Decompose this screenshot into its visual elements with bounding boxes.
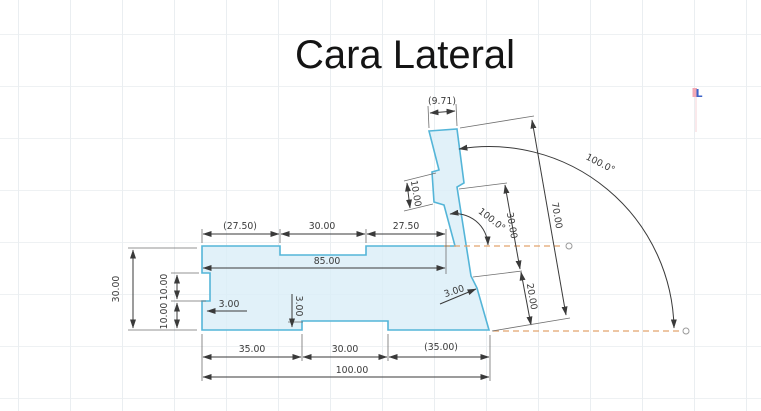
dim-label-angle-inner[interactable]: 100.0° [476, 206, 507, 234]
text-cursor-marker[interactable]: L [693, 87, 703, 132]
axis-endpoint-circle[interactable] [683, 328, 689, 334]
dim-label-top-mid[interactable]: 30.00 [309, 221, 336, 232]
angle-arc [459, 147, 674, 328]
extension-line [456, 104, 457, 126]
extension-line [460, 116, 534, 128]
dim-label-angle-outer[interactable]: 100.0° [584, 152, 617, 176]
dim-label-bottom-right[interactable]: (35.00) [424, 342, 458, 353]
construction-axis-lower[interactable] [493, 328, 689, 334]
dim-label-left-lower[interactable]: 10.00 [159, 303, 170, 330]
dim-label-left-upper[interactable]: 10.00 [159, 274, 170, 301]
extension-line [428, 106, 429, 128]
dim-label-bottom-mid[interactable]: 30.00 [332, 344, 359, 355]
dim-label-top-left[interactable]: (27.50) [223, 221, 257, 232]
dim-column-step: 10.00 [404, 173, 436, 211]
extension-line [459, 183, 507, 189]
dim-top-width: (9.71) [428, 96, 457, 128]
dim-angle-outer: 100.0° [459, 147, 674, 328]
dim-label-band[interactable]: 85.00 [314, 256, 341, 267]
dim-label-left-height[interactable]: 30.00 [111, 276, 122, 303]
dim-label-slant-70[interactable]: 70.00 [549, 202, 564, 230]
dim-label-top-right[interactable]: 27.50 [393, 221, 420, 232]
dim-label-total-width[interactable]: 100.00 [336, 365, 369, 376]
cad-canvas: Cara Lateral (9.71) [0, 0, 761, 411]
sketch-svg: (9.71) 10.00 100.0° 100.0° 30.00 [0, 0, 761, 411]
dim-label-notch-left[interactable]: 3.00 [219, 299, 240, 310]
cursor-label: L [695, 87, 702, 100]
axis-endpoint-circle[interactable] [566, 243, 572, 249]
dim-label-slant-20[interactable]: 20.00 [524, 283, 539, 311]
dim-label-step-mid[interactable]: 3.00 [293, 296, 304, 317]
dim-slant-20: 20.00 [521, 272, 539, 325]
extension-line [404, 173, 436, 181]
dim-label-top-width[interactable]: (9.71) [428, 96, 456, 107]
dimension-line [430, 111, 455, 113]
dim-left-segments: 10.00 10.00 [159, 273, 206, 329]
dim-label-slant-30[interactable]: 30.00 [504, 212, 519, 240]
dim-left-height: 30.00 [111, 248, 197, 330]
dim-label-bottom-left[interactable]: 35.00 [239, 344, 266, 355]
extension-line [473, 271, 522, 277]
extension-line [492, 318, 570, 331]
dim-label-column-step[interactable]: 10.00 [408, 180, 423, 208]
dim-total-width: 100.00 [203, 365, 489, 377]
